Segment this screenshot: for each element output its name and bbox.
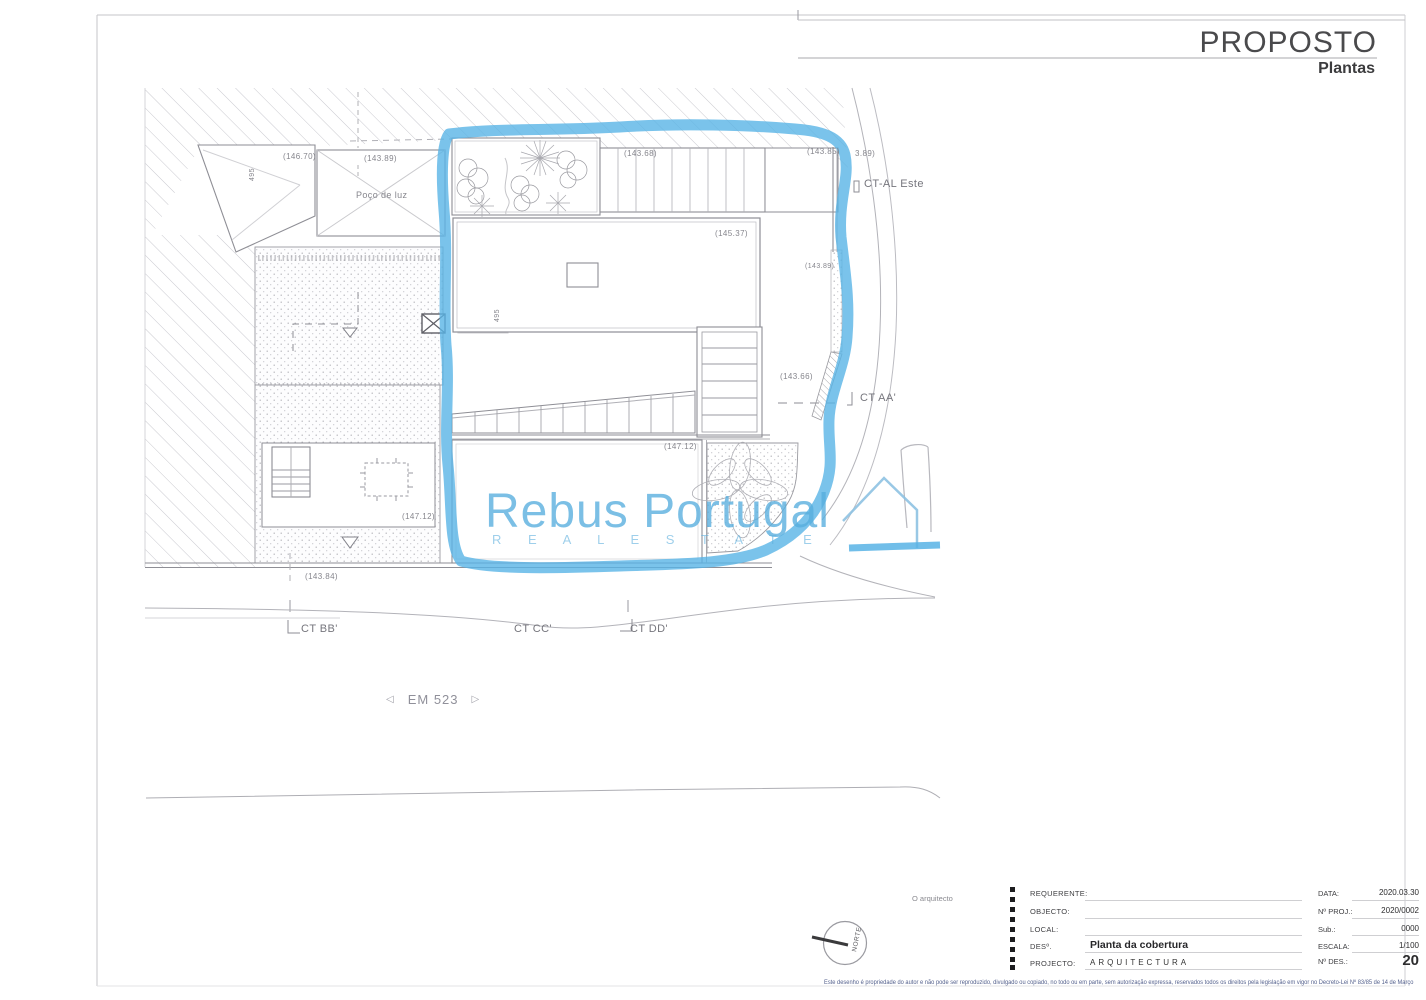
- titleblock-mark: [1010, 937, 1015, 942]
- field-underline: [1085, 952, 1302, 953]
- titleblock-mark: [1010, 887, 1015, 892]
- level-label: Poço de luz: [356, 191, 407, 200]
- level-label: (143.66): [780, 373, 813, 381]
- scanned-plan-sheet: NORTE PROPOSTO Plantas (146.70)495(143.8…: [0, 0, 1426, 1000]
- titleblock-mark: [1010, 957, 1015, 962]
- page-title: PROPOSTO: [1200, 26, 1377, 60]
- level-label: (147.12): [402, 513, 435, 521]
- level-label: 495: [494, 309, 501, 322]
- meta-underline: [1352, 952, 1419, 953]
- project-discipline: ARQUITECTURA: [1090, 958, 1189, 967]
- section-label: CT-AL Este: [864, 179, 924, 190]
- level-label: (143.68): [624, 150, 657, 158]
- titleblock-mark: [1010, 927, 1015, 932]
- meta-label-nproj: Nº PROJ.:: [1318, 907, 1352, 916]
- level-label: 495: [249, 168, 256, 181]
- field-underline: [1085, 900, 1302, 901]
- field-label-des: DESº.: [1030, 942, 1052, 951]
- level-label: (145.37): [715, 230, 748, 238]
- meta-label-sub: Sub.:: [1318, 925, 1336, 934]
- road-arrow-left: ◁: [386, 694, 395, 705]
- field-label-objecto: OBJECTO:: [1030, 907, 1070, 916]
- titleblock-mark: [1010, 947, 1015, 952]
- level-label: (143.89): [364, 155, 397, 163]
- copyright-disclaimer: Este desenho é propriedade do autor e nã…: [824, 979, 1352, 986]
- meta-value-ndes: 20: [1349, 952, 1419, 969]
- meta-underline: [1352, 918, 1419, 919]
- level-label: (143.84): [305, 573, 338, 581]
- road-arrow-right: ▷: [472, 694, 481, 705]
- field-label-requerente: REQUERENTE:: [1030, 889, 1087, 898]
- section-label: CT DD': [630, 624, 668, 635]
- watermark-name: Rebus Portugal: [485, 484, 830, 539]
- north-arrow: NORTE: [812, 922, 867, 965]
- drawing-title: Planta da cobertura: [1090, 939, 1188, 951]
- road-name: EM 523: [408, 692, 459, 707]
- field-label-local: LOCAL:: [1030, 925, 1058, 934]
- meta-label-ndes: Nº DES.:: [1318, 957, 1348, 966]
- field-underline: [1085, 918, 1302, 919]
- meta-label-escala: ESCALA:: [1318, 942, 1350, 951]
- level-label: (146.70): [283, 153, 316, 161]
- field-label-projecto: PROJECTO:: [1030, 959, 1075, 968]
- meta-value-escala: 1/100: [1349, 941, 1419, 950]
- level-label: 3.89): [855, 150, 875, 158]
- meta-underline: [1352, 935, 1419, 936]
- field-underline: [1085, 935, 1302, 936]
- titleblock-mark: [1010, 965, 1015, 970]
- meta-value-sub: 0000: [1349, 924, 1419, 933]
- section-label: CT AA': [860, 393, 896, 404]
- field-underline: [1085, 969, 1302, 970]
- level-label: (143.85): [807, 148, 840, 156]
- section-label: CT BB': [301, 624, 338, 635]
- page-subtitle: Plantas: [1318, 60, 1375, 78]
- road-label: ◁ EM 523 ▷: [386, 692, 480, 707]
- titleblock-mark: [1010, 917, 1015, 922]
- architect-signature-label: O arquitecto: [912, 894, 953, 903]
- level-label: (147.12): [664, 443, 697, 451]
- meta-underline: [1352, 900, 1419, 901]
- level-label: (143.89): [805, 263, 834, 270]
- watermark-house-logo: [843, 478, 940, 548]
- north-label: NORTE: [851, 926, 863, 952]
- titleblock-mark: [1010, 907, 1015, 912]
- titleblock-mark: [1010, 897, 1015, 902]
- section-label: CT CC': [514, 624, 552, 635]
- watermark-tagline: R E A L E S T A T E: [492, 532, 823, 547]
- terrace-dotted-lower: [255, 385, 440, 563]
- meta-value-data: 2020.03.30: [1349, 888, 1419, 897]
- meta-label-data: DATA:: [1318, 889, 1339, 898]
- meta-value-nproj: 2020/0002: [1349, 906, 1419, 915]
